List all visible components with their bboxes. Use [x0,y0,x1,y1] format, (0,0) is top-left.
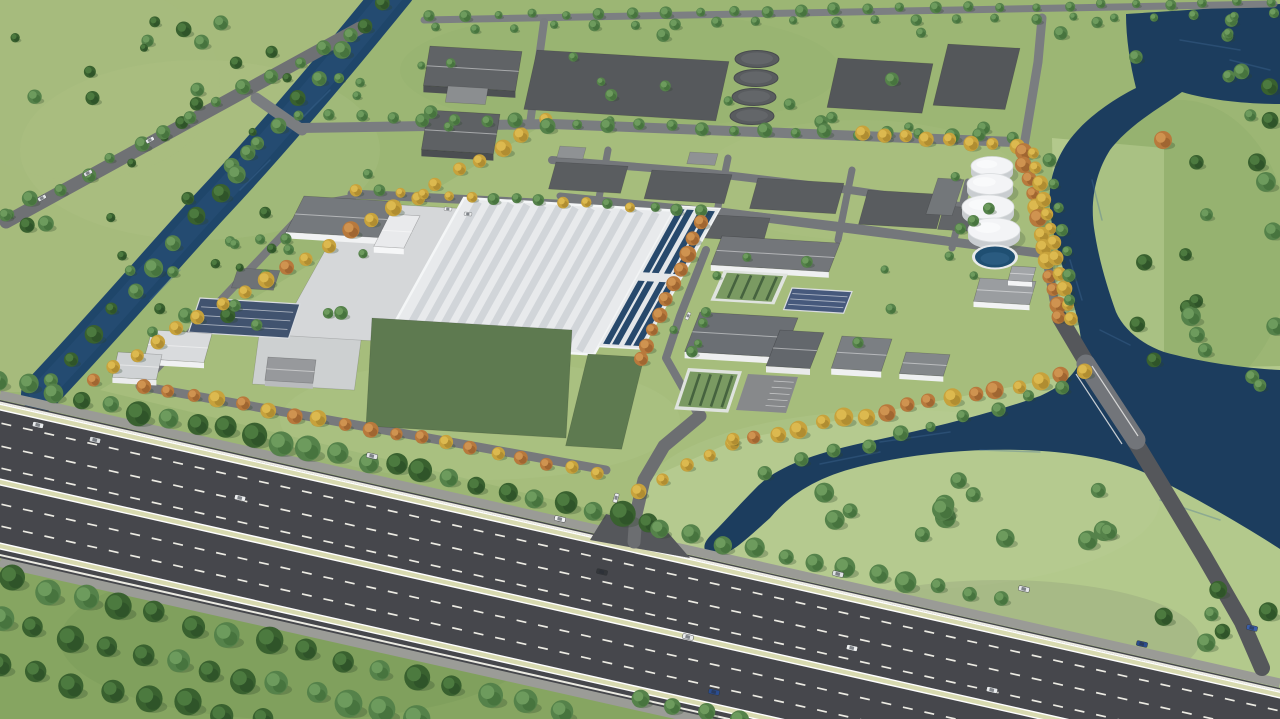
tree-light [271,434,285,448]
tree-light [1231,13,1236,18]
tree-light [857,127,865,135]
tree-light [1191,296,1199,304]
tree-light [324,309,330,315]
tree-light [567,462,574,469]
tree-light [126,266,132,272]
tree-light [60,628,75,643]
tree-light [993,404,1001,412]
tree-light [509,114,517,122]
tree-light [901,399,909,407]
tree-light [107,304,114,311]
tree-light [1054,204,1060,210]
tree-light [945,390,955,400]
tree-light [712,18,718,24]
tree-light [447,59,452,64]
tree-light [633,691,643,701]
tree-light [105,154,111,160]
car [444,207,452,211]
tree-light [1131,318,1140,327]
tree-light [1224,29,1230,35]
tree-light [311,412,320,421]
tree-light [107,214,112,219]
tree-light [687,233,695,241]
tree-light [635,353,643,361]
tree-light [1037,193,1045,201]
tree-light [905,123,910,128]
tree-light [212,260,217,265]
tree-light [168,267,174,273]
tree-light [541,120,550,129]
tree-light [965,137,973,145]
tree-light [11,34,16,39]
tree-light [1183,308,1194,319]
tree-light [189,390,196,397]
tree-light [952,474,961,483]
tree-light [389,113,395,119]
tree-light [107,595,122,610]
tree-light [364,170,370,176]
tree-light [747,539,758,550]
tree-light [827,113,833,119]
tree-light [61,676,75,690]
tree-light [138,688,153,703]
tree-light [297,641,309,653]
tree-light [818,125,826,133]
tree-light [183,193,190,200]
tree-light [1042,209,1049,216]
tree-light [670,20,676,26]
tree-light [1130,51,1138,59]
tree-light [38,582,52,596]
tree-light [1037,241,1046,250]
tree-light [86,327,96,337]
tree-light [387,201,396,210]
tree-light [715,538,725,548]
tree-light [1199,635,1209,645]
tree-light [375,186,382,193]
tree-light [632,22,637,27]
tree-light [894,427,903,436]
tree-light [1017,158,1026,167]
tree-light [1066,3,1072,9]
tree-light [87,92,95,100]
open-tank-water-light [981,252,1010,265]
tree-light [371,699,386,714]
tree-light [351,185,358,192]
tree-light [991,15,996,20]
tree-light [1138,256,1147,265]
tree-light [217,625,231,639]
scene-canvas [0,0,1280,719]
tree-light [969,216,975,222]
tree-light [56,185,63,192]
tree-light [759,124,767,132]
tree-light [658,30,665,37]
tree-light [1156,609,1166,619]
tree-light [958,411,965,418]
tree-light [1216,625,1225,634]
tree-light [632,485,641,494]
tree-light [796,6,803,13]
tree-light [1111,14,1116,19]
tree-light [190,416,201,427]
tree-light [590,21,596,27]
tree-light [837,559,848,570]
tree-light [836,409,846,419]
tree-light [953,15,958,20]
tree-light [1261,604,1271,614]
tree-light [695,216,703,224]
tree-light [229,167,239,177]
tree-light [1255,380,1262,387]
tree-light [1034,177,1043,186]
tree-light [1070,13,1074,17]
tree-light [267,47,274,54]
tree-light [1065,313,1073,321]
tree-light [212,706,225,719]
tree-light [259,273,268,282]
tree-light [329,444,341,456]
tree-light [1258,174,1269,185]
tree-light [345,29,353,37]
tree-light [1058,282,1067,291]
tree-light [177,691,192,706]
tree-light [1048,284,1055,291]
tree-light [1190,11,1196,17]
tree-light [626,203,632,209]
tree-light [468,193,474,199]
tree-light [440,436,448,444]
tree-light [790,17,795,22]
north-shed-2 [687,152,718,165]
tree-light [998,531,1008,541]
tree-light [212,98,218,104]
tree-light [672,205,679,212]
tree-light [527,491,537,501]
tree-light [1268,319,1278,329]
tree-light [281,261,289,269]
tree-light [337,692,352,707]
dark-basin-top [740,72,772,84]
tree-light [1024,391,1030,397]
tree-light [582,198,588,204]
tree-light [353,92,358,97]
tree-light [501,485,512,496]
tree-light [1035,229,1044,238]
tree-light [700,705,709,714]
tree-light [970,272,975,277]
tree-light [259,629,274,644]
tree-light [956,224,962,230]
dark-basin-top [738,91,770,103]
tree-light [995,593,1003,601]
tree-light [573,121,579,127]
tree-light [0,210,7,217]
tree-light [407,667,421,681]
tree-light [1029,149,1035,155]
tree-light [192,84,200,92]
tree-light [1033,4,1038,9]
tree-light [267,673,280,686]
tree-light [283,74,288,79]
tree-light [654,309,662,317]
tree-light [1030,163,1037,170]
tree-light [1078,365,1087,374]
tree-light [493,448,500,455]
tree-light [946,252,951,257]
tree-light [180,309,188,317]
tree-light [863,5,869,11]
tree-light [901,131,908,138]
sports-lawn-large [366,318,572,438]
tree-light [364,423,373,432]
tree-light [920,133,928,141]
tree-light [1054,268,1062,276]
tree-light [687,347,693,353]
tree-light [853,338,859,344]
tree-light [1008,133,1015,140]
tree-light [1055,28,1063,36]
tree-light [281,234,287,240]
north-pad-3 [750,178,845,214]
tree-light [1247,371,1255,379]
tree-light [1049,180,1055,186]
tree-light [297,438,311,452]
tree-light [695,340,700,345]
tree-light [725,97,730,102]
tree-light [210,392,219,401]
tree-light [551,21,556,26]
tree-light [464,442,472,450]
tree-light [411,461,424,474]
tree-light [802,257,808,263]
tree-light [1151,14,1156,19]
tree-light [594,9,600,15]
tree-light [135,647,147,659]
tree-light [416,431,423,438]
tree-light [534,195,540,201]
tree-light [233,671,247,685]
tree-light [104,682,117,695]
tree-light [796,454,804,462]
tree-light [418,62,422,66]
tree-light [912,16,918,22]
tree-light [816,116,823,123]
tree-light [541,459,548,466]
tree-light [441,470,451,480]
tree-light [356,79,361,84]
tree-light [481,685,495,699]
tree-light [1180,249,1187,256]
tree-light [150,17,156,23]
tree-light [702,308,708,314]
tree-light [666,700,675,709]
tree-light [359,20,367,28]
car-windshield [446,208,449,211]
tree-light [792,129,798,135]
tree-light [461,11,468,18]
tree-light [1014,382,1021,389]
tree-light [1044,271,1051,278]
tree-light [697,9,702,14]
tree-light [132,350,139,357]
tree-light [603,199,609,205]
tree-light [29,91,37,99]
tree-light [483,117,490,124]
tree-light [215,17,223,25]
tree-light [145,603,157,615]
tree-light [652,522,662,532]
tree-light [496,141,506,151]
tree-light [214,186,224,196]
tree-light [1224,71,1231,78]
tree-light [469,479,479,489]
tree-light [324,110,330,116]
tree-light [880,406,890,416]
tree-light [879,130,887,138]
tree-light [987,383,997,393]
tree-light [88,375,95,382]
tree-light [1080,533,1091,544]
tree-light [730,7,736,13]
tree-light [780,551,788,559]
tree-light [675,264,683,272]
tree-light [272,119,281,128]
tree-light [586,504,596,514]
tree-light [652,203,657,208]
tree-light [388,455,400,467]
tree-light [772,428,781,437]
tree-light [871,16,876,21]
tree-light [1270,9,1276,15]
tree-light [75,394,85,404]
tree-light [829,4,836,11]
tree-light [1054,368,1063,377]
tree-light [24,618,35,629]
tree-light [323,240,331,248]
tree-light [817,416,825,424]
tree-light [2,567,16,581]
tree-light [612,503,626,517]
tree-light [1051,298,1061,308]
tree-light [39,217,48,226]
tree-light [592,468,599,475]
tree-light [242,147,250,155]
tree-light [832,18,838,24]
tree-light [563,12,568,17]
tree-light [340,419,347,426]
dark-basin-top [741,53,773,65]
tree-light [185,112,192,119]
tree-light [489,194,496,201]
car [464,212,472,216]
tree-light [916,528,924,536]
tree-light [516,691,529,704]
tree-light [1034,374,1044,384]
tree-light [763,7,770,14]
tree-light [628,9,634,15]
tree-light [1048,237,1056,245]
tree-light [445,192,450,197]
tree-light [661,81,667,87]
tree-light [864,441,872,449]
tree-light [569,53,574,58]
tree-light [231,58,238,65]
tree-light [1064,270,1071,277]
tree-light [1093,18,1099,24]
tree-light [196,36,204,44]
tree-light [668,121,674,127]
tree-light [155,304,161,310]
tree-light [1040,253,1050,263]
tree-light [189,209,199,219]
tree-light [668,278,676,286]
tree-light [696,124,704,132]
tree-light [136,138,144,146]
tree-light [85,67,92,74]
tree-light [21,219,29,227]
tree-light [860,410,870,420]
tree-light [558,198,564,204]
tree-light [128,404,142,418]
tree-light [424,11,430,17]
tree-light [249,129,253,133]
tree-light [201,663,213,675]
tree-light [816,485,827,496]
tree-light [391,429,398,436]
tree-light [1266,224,1276,234]
tree-light [871,566,881,576]
tree-light [844,505,852,513]
tree-light [170,322,178,330]
tree-light [23,192,32,201]
tree-light [748,432,755,439]
tree-light [296,58,302,64]
future-shed [445,86,488,105]
tree-light [495,12,499,16]
tree-light [1032,15,1038,21]
tree-light [730,127,736,133]
tree-light [759,467,767,475]
tree-light [1017,145,1026,154]
tree-light [294,112,300,118]
tree-light [177,117,184,124]
tree-light [1044,154,1052,162]
tree-light [696,206,703,213]
tree-light [1263,114,1272,123]
tree-light [184,618,197,631]
tree-light [922,395,930,403]
tree-light [261,208,267,214]
tree-light [335,74,341,80]
tree-light [252,138,259,145]
tree-light [152,336,160,344]
tree-light [640,340,648,348]
tree-light [827,512,838,523]
tree-light [284,245,290,251]
tree-light [397,189,402,194]
tree-light [914,129,920,135]
future-pad-east [827,58,933,113]
tree-light [964,588,972,596]
tree-light [454,164,461,171]
tree-light [511,25,516,30]
tree-light [944,134,951,141]
tree-light [988,139,995,146]
tree-light [471,25,476,30]
tree-light [515,452,523,460]
tree-light [927,423,933,429]
